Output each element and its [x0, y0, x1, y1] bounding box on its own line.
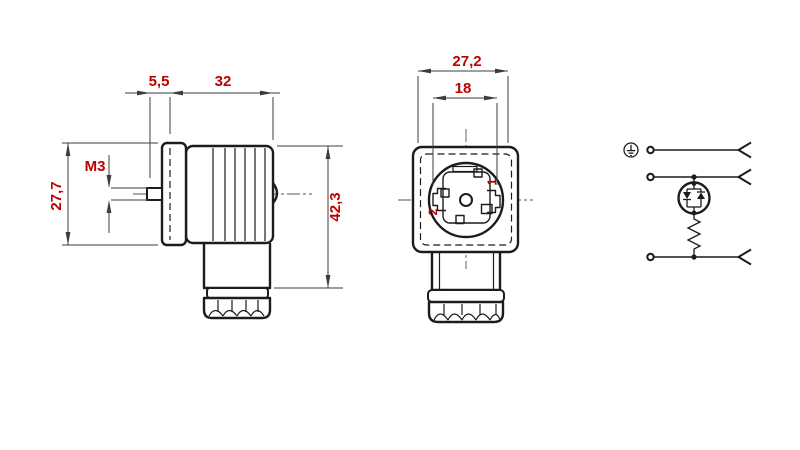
dim-label-total-height: 42,3 [327, 192, 344, 221]
dim-label-pin-offset: 5,5 [149, 73, 170, 90]
pin-2-label: 2 [426, 208, 440, 215]
dim-label-body-length: 32 [215, 73, 232, 90]
dim-label-width: 27,2 [452, 53, 481, 70]
center-screw-hole [460, 194, 472, 206]
technical-drawing-canvas: 5,5 32 27,7 M3 42,3 [0, 0, 800, 450]
terminal-line2-icon [647, 254, 653, 260]
dim-label-thread: M3 [85, 158, 106, 175]
dim-label-flange-height: 27,7 [48, 181, 65, 210]
mounting-flange [162, 143, 186, 245]
contact-chevron-earth-icon [739, 143, 752, 158]
front-view: 1 2 27,2 1 [398, 53, 533, 322]
connector-body-outline [186, 146, 273, 243]
contact-chevron-line1-icon [739, 170, 752, 185]
front-cable-gland-nut [429, 302, 503, 322]
m3-screw-pin [147, 188, 162, 200]
gland-ring [207, 288, 268, 298]
dim-label-inner-diameter: 18 [455, 80, 472, 97]
side-view: 5,5 32 27,7 M3 42,3 [48, 73, 344, 318]
bidirectional-led-icon [679, 177, 710, 215]
front-gland-ring [428, 290, 504, 302]
connector-neck [204, 243, 270, 288]
terminal-line1-icon [647, 174, 653, 180]
terminal-earth-icon [647, 147, 653, 153]
resistor-icon [688, 213, 700, 257]
protective-earth-icon [624, 143, 638, 157]
wiring-schematic [624, 143, 751, 265]
contact-chevron-line2-icon [739, 250, 752, 265]
